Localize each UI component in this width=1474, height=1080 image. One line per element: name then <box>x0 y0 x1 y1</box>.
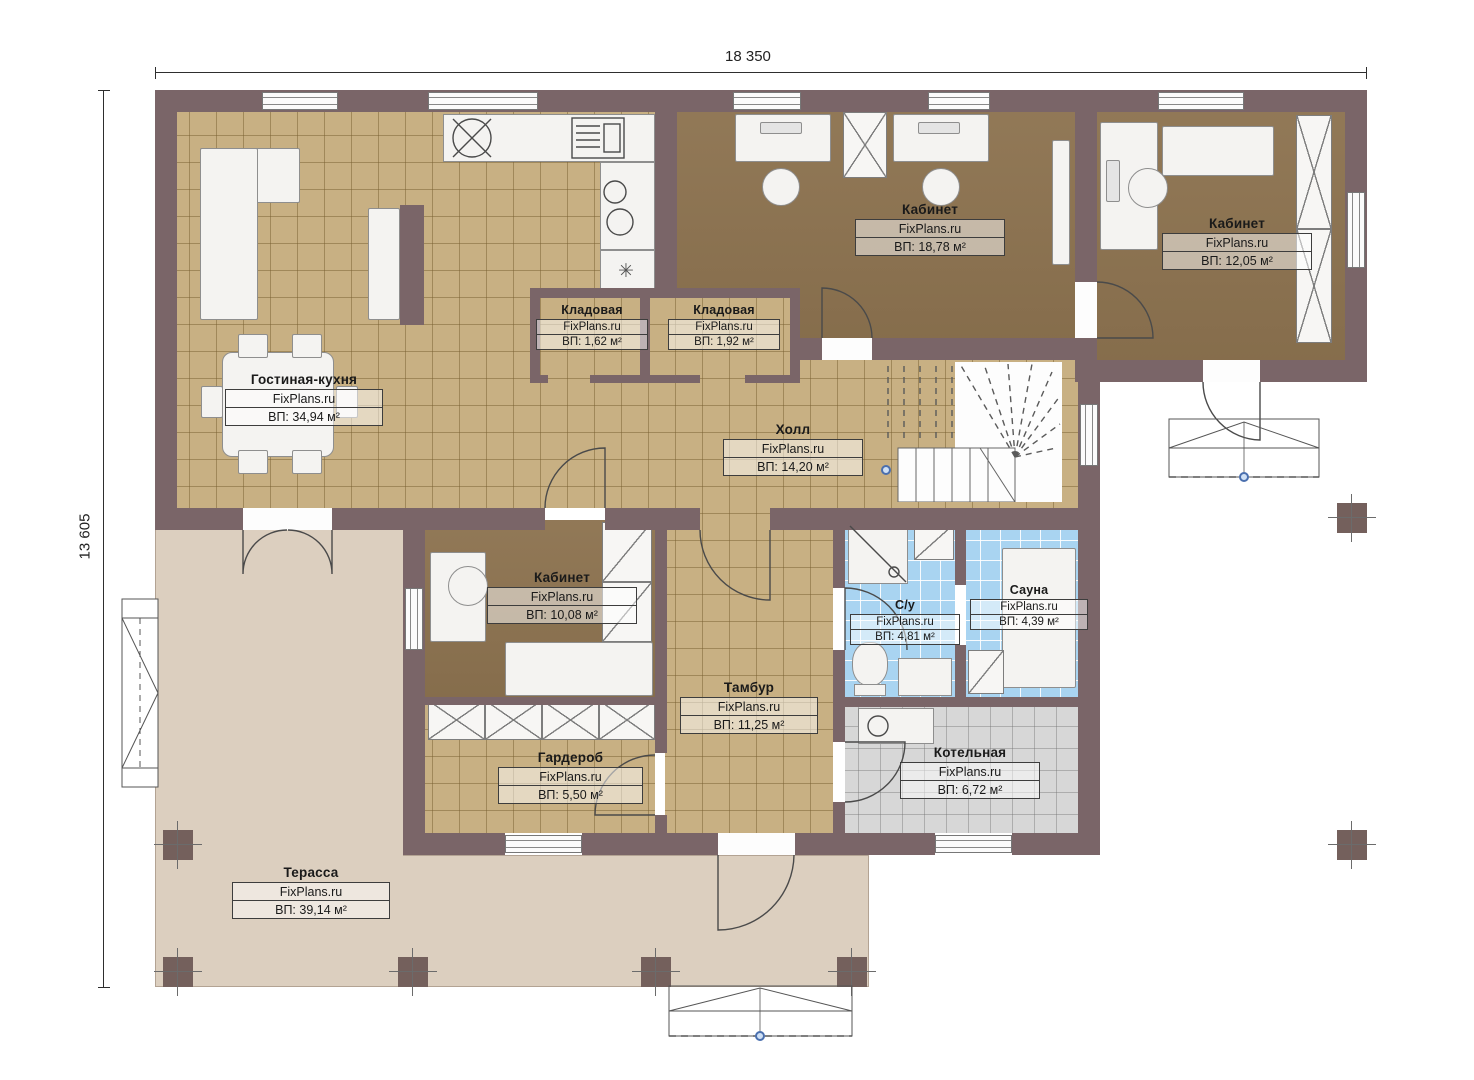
room-label-bathroom: С/у FixPlans.ru ВП: 4,81 м² <box>850 598 960 645</box>
room-area: ВП: 12,05 м² <box>1163 251 1311 269</box>
window <box>1347 192 1365 268</box>
room-info-box: FixPlans.ru ВП: 14,20 м² <box>723 439 863 476</box>
room-name: Тамбур <box>680 680 818 695</box>
room-name: Терасса <box>232 865 390 880</box>
wall-wing-bottom <box>1097 360 1203 382</box>
sofa-side <box>200 148 258 320</box>
wall-left <box>155 90 177 530</box>
room-name: Гостиная-кухня <box>225 372 383 387</box>
watermark: FixPlans.ru <box>856 220 1004 237</box>
window <box>733 92 801 110</box>
window <box>1158 92 1244 110</box>
kitchen-counter-top <box>443 114 655 162</box>
room-info-box: FixPlans.ru ВП: 6,72 м² <box>900 762 1040 799</box>
wall-office-bottom <box>872 338 1097 360</box>
wall-bottom <box>1012 833 1100 855</box>
watermark: FixPlans.ru <box>901 763 1039 780</box>
watermark: FixPlans.ru <box>669 320 779 334</box>
monitor <box>760 122 802 134</box>
terrace-post <box>163 957 193 987</box>
room-label-wardrobe: Гардероб FixPlans.ru ВП: 5,50 м² <box>498 750 643 804</box>
room-label-vestibule: Тамбур FixPlans.ru ВП: 11,25 м² <box>680 680 818 734</box>
window <box>262 92 338 110</box>
toilet-bowl <box>852 642 888 686</box>
room-label-office-mid: Кабинет FixPlans.ru ВП: 10,08 м² <box>487 570 637 624</box>
watermark: FixPlans.ru <box>724 440 862 457</box>
shelf <box>1052 140 1070 265</box>
wall-storage-bottom <box>590 375 700 383</box>
window <box>928 92 990 110</box>
dimension-line-left <box>103 90 104 988</box>
room-label-boiler: Котельная FixPlans.ru ВП: 6,72 м² <box>900 745 1040 799</box>
room-area: ВП: 34,94 м² <box>226 407 382 425</box>
wall-vestibule-left <box>655 530 667 753</box>
dining-chair <box>292 334 322 358</box>
watermark: FixPlans.ru <box>488 588 636 605</box>
room-info-box: FixPlans.ru ВП: 4,39 м² <box>970 599 1088 630</box>
room-info-box: FixPlans.ru ВП: 5,50 м² <box>498 767 643 804</box>
wall-bath-sauna <box>955 520 966 585</box>
window <box>405 588 423 650</box>
room-label-sauna: Сауна FixPlans.ru ВП: 4,39 м² <box>970 583 1088 630</box>
room-name: Холл <box>723 422 863 437</box>
terrace-post <box>641 957 671 987</box>
wall-vestibule-right <box>833 650 845 742</box>
room-area: ВП: 4,81 м² <box>851 629 959 644</box>
room-info-box: FixPlans.ru ВП: 12,05 м² <box>1162 233 1312 270</box>
dimension-height-label: 13 605 <box>76 514 93 560</box>
sofa-right-office <box>1162 126 1274 176</box>
dining-chair <box>201 386 223 418</box>
wall-bottom <box>795 833 935 855</box>
room-area: ВП: 5,50 м² <box>499 785 642 803</box>
room-info-box: FixPlans.ru ВП: 4,81 м² <box>850 614 960 645</box>
room-name: Кладовая <box>536 303 648 317</box>
room-area: ВП: 6,72 м² <box>901 780 1039 798</box>
room-area: ВП: 1,62 м² <box>537 334 647 349</box>
porch-steps-right <box>1168 418 1320 484</box>
appliance-icon: ✳ <box>618 262 634 281</box>
boiler-unit <box>858 708 934 744</box>
room-info-box: FixPlans.ru ВП: 10,08 м² <box>487 587 637 624</box>
window <box>428 92 538 110</box>
wall-bath-sauna <box>955 645 966 697</box>
room-area: ВП: 10,08 м² <box>488 605 636 623</box>
room-label-living: Гостиная-кухня FixPlans.ru ВП: 34,94 м² <box>225 372 383 426</box>
watermark: FixPlans.ru <box>233 883 389 900</box>
room-label-storage1: Кладовая FixPlans.ru ВП: 1,62 м² <box>536 303 648 350</box>
wall-storage-bottom <box>530 375 548 383</box>
room-label-storage2: Кладовая FixPlans.ru ВП: 1,92 м² <box>668 303 780 350</box>
vestibule-floor <box>665 520 833 833</box>
watermark: FixPlans.ru <box>499 768 642 785</box>
room-info-box: FixPlans.ru ВП: 34,94 м² <box>225 389 383 426</box>
watermark: FixPlans.ru <box>851 615 959 629</box>
tv-partition-wall <box>400 205 424 325</box>
wall-bath-boiler <box>845 697 1078 707</box>
watermark: FixPlans.ru <box>226 390 382 407</box>
terrace-post <box>163 830 193 860</box>
room-info-box: FixPlans.ru ВП: 1,62 м² <box>536 319 648 350</box>
wall-storage-top <box>530 288 800 298</box>
wall-low-left <box>403 530 425 855</box>
wall-vestibule-right <box>833 802 845 833</box>
wall-vestibule-left <box>655 815 667 833</box>
watermark: FixPlans.ru <box>971 600 1087 614</box>
room-area: ВП: 18,78 м² <box>856 237 1004 255</box>
canopy-post <box>1337 503 1367 533</box>
porch-steps-bottom <box>668 985 853 1041</box>
wall-band-top <box>770 508 1100 530</box>
office-chair <box>448 566 488 606</box>
room-name: Кабинет <box>855 202 1005 217</box>
room-name: Кабинет <box>487 570 637 585</box>
wall-office-wardrobe <box>425 697 655 705</box>
terrace-post <box>837 957 867 987</box>
room-name: Сауна <box>970 583 1088 597</box>
wardrobe-cabinet <box>843 112 887 178</box>
room-name: Кладовая <box>668 303 780 317</box>
room-info-box: FixPlans.ru ВП: 18,78 м² <box>855 219 1005 256</box>
canopy-post <box>1337 830 1367 860</box>
french-door-gap <box>243 508 332 530</box>
dining-chair <box>238 334 268 358</box>
side-steps-left <box>120 598 160 788</box>
dimension-line-top <box>155 72 1367 73</box>
wall-terrace <box>332 508 425 530</box>
shower <box>848 524 908 584</box>
wall-vestibule-right <box>833 530 845 588</box>
entrance-door-gap <box>718 833 795 855</box>
watermark: FixPlans.ru <box>681 698 817 715</box>
terrace-post <box>398 957 428 987</box>
room-info-box: FixPlans.ru ВП: 11,25 м² <box>680 697 818 734</box>
room-name: С/у <box>850 598 960 612</box>
door-gap <box>1203 360 1260 382</box>
room-label-hall: Холл FixPlans.ru ВП: 14,20 м² <box>723 422 863 476</box>
office-chair <box>762 168 800 206</box>
monitor <box>1106 160 1120 202</box>
wardrobe-unit <box>542 700 599 740</box>
wall-bottom <box>582 833 718 855</box>
wall-storage-bottom <box>745 375 800 383</box>
room-name: Кабинет <box>1162 216 1312 231</box>
window <box>935 835 1012 853</box>
window-stair <box>1080 404 1098 466</box>
sofa-mid-office <box>505 642 653 696</box>
room-area: ВП: 11,25 м² <box>681 715 817 733</box>
room-info-box: FixPlans.ru ВП: 39,14 м² <box>232 882 390 919</box>
tv-stand <box>368 208 400 320</box>
wardrobe-cabinet <box>1296 115 1332 229</box>
toilet-tank <box>854 684 886 696</box>
office-chair <box>922 168 960 206</box>
room-name: Гардероб <box>498 750 643 765</box>
wardrobe-unit <box>428 700 485 740</box>
room-label-office-top: Кабинет FixPlans.ru ВП: 18,78 м² <box>855 202 1005 256</box>
room-label-office-right: Кабинет FixPlans.ru ВП: 12,05 м² <box>1162 216 1312 270</box>
room-area: ВП: 14,20 м² <box>724 457 862 475</box>
wall-wing-bottom <box>1260 360 1367 382</box>
room-name: Котельная <box>900 745 1040 760</box>
monitor <box>918 122 960 134</box>
sauna-heater <box>968 650 1004 694</box>
kitchen-counter-side <box>600 162 655 250</box>
wall-terrace <box>155 508 243 530</box>
dimension-width-label: 18 350 <box>725 48 771 65</box>
wardrobe-unit <box>599 700 655 740</box>
terrace-floor-bottom <box>403 855 869 987</box>
door-gap <box>822 338 872 360</box>
wall-band-top <box>605 508 700 530</box>
wall-storage <box>790 288 800 383</box>
wall-bottom <box>403 833 505 855</box>
room-area: ВП: 4,39 м² <box>971 614 1087 629</box>
window <box>505 835 582 853</box>
watermark: FixPlans.ru <box>537 320 647 334</box>
room-info-box: FixPlans.ru ВП: 1,92 м² <box>668 319 780 350</box>
bath-cabinet <box>898 658 952 696</box>
floor-plan: 18 350 13 605 ✳ <box>0 0 1474 1080</box>
room-area: ВП: 1,92 м² <box>669 334 779 349</box>
room-area: ВП: 39,14 м² <box>233 900 389 918</box>
wardrobe-unit <box>485 700 542 740</box>
watermark: FixPlans.ru <box>1163 234 1311 251</box>
dining-chair <box>292 450 322 474</box>
dining-chair <box>238 450 268 474</box>
wall-living-office <box>655 112 677 296</box>
door-gap <box>1075 282 1097 338</box>
room-label-terrace: Терасса FixPlans.ru ВП: 39,14 м² <box>232 865 390 919</box>
